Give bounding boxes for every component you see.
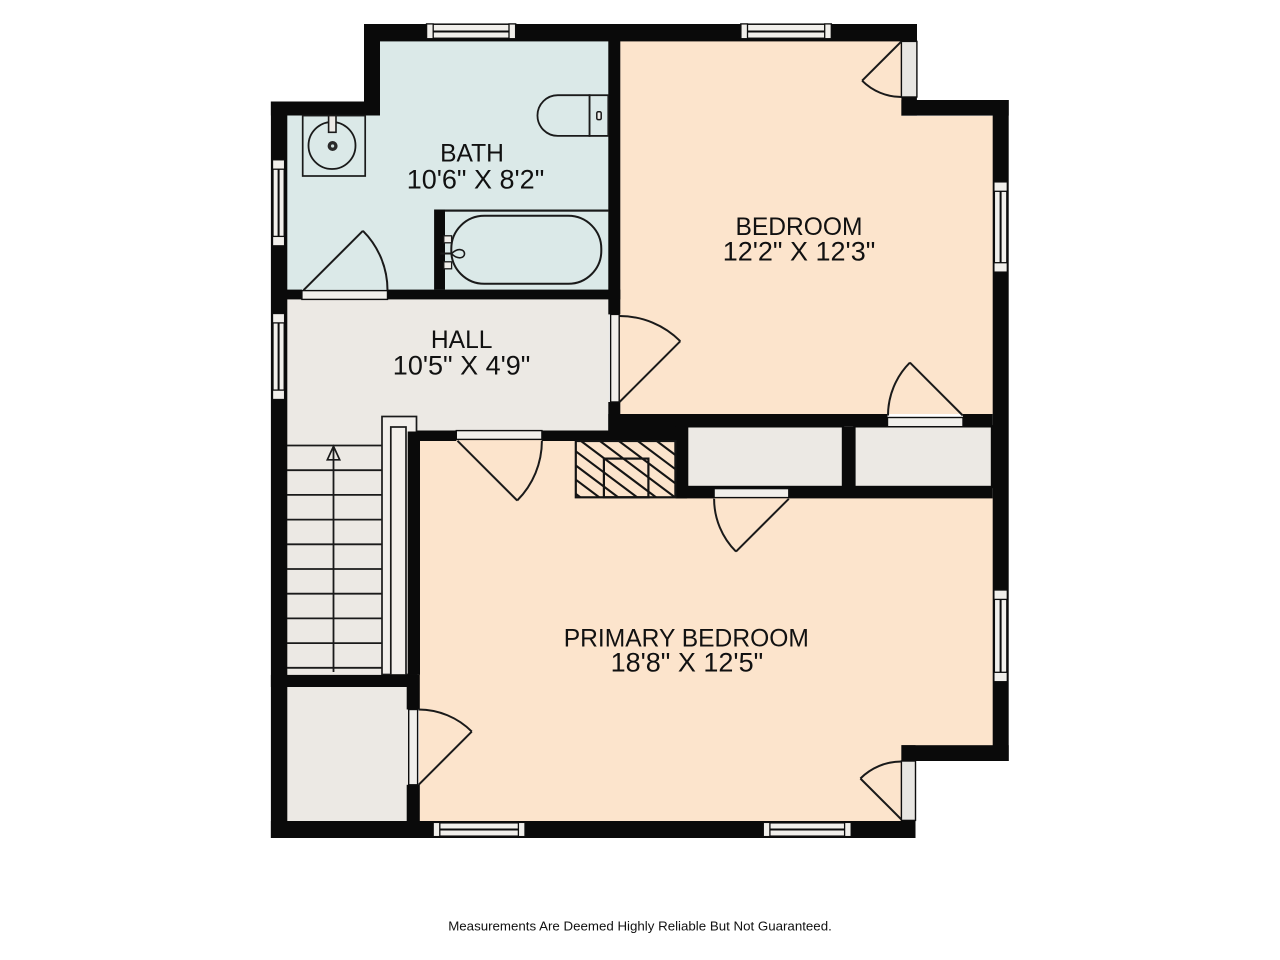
svg-text:10'6" X 8'2": 10'6" X 8'2" bbox=[407, 165, 545, 195]
svg-text:18'8" X 12'5": 18'8" X 12'5" bbox=[611, 647, 764, 677]
svg-text:Measurements Are Deemed Highly: Measurements Are Deemed Highly Reliable … bbox=[448, 918, 832, 933]
svg-text:BATH: BATH bbox=[440, 140, 504, 167]
svg-text:12'2" X 12'3": 12'2" X 12'3" bbox=[723, 237, 876, 267]
svg-text:10'5" X 4'9": 10'5" X 4'9" bbox=[393, 351, 531, 381]
